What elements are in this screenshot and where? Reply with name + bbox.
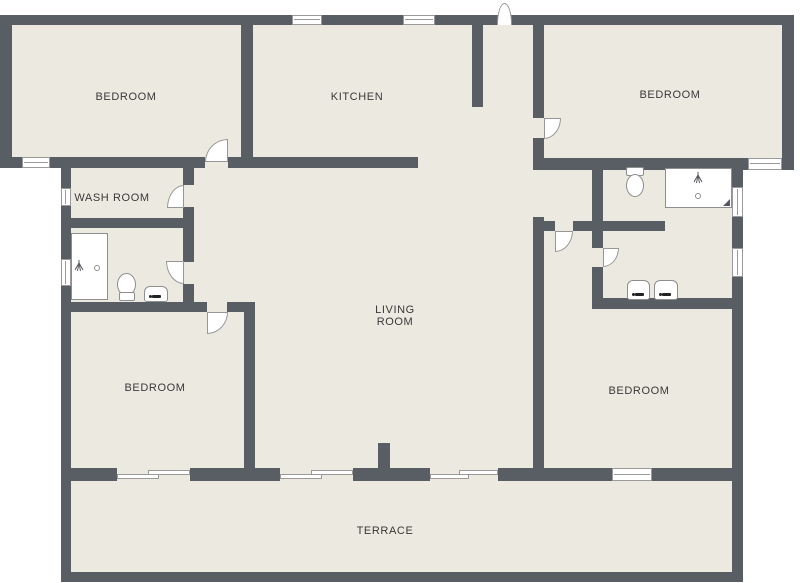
faucet-icon (662, 293, 671, 296)
wall-terrace-bottom (61, 572, 740, 582)
toilet-left-tank (119, 292, 135, 301)
sliding-door-living-1 (280, 468, 353, 481)
sliding-door-living-2 (430, 468, 498, 481)
wall-rightbath-divider-a (592, 158, 603, 248)
drain-icon (94, 265, 100, 271)
room-label-wash-room: WASH ROOM (74, 192, 149, 204)
window-bedroombr-bottom (612, 468, 652, 481)
sliding-pane (148, 470, 190, 475)
wall-kitchen-right (472, 24, 483, 107)
wall-bedroombl-right (244, 302, 255, 481)
room-label-bedroom-bottom-left: BEDROOM (124, 382, 185, 394)
wall-exterior-left-upper (0, 15, 12, 168)
window-kitchen-1 (292, 15, 322, 25)
sliding-pane (459, 470, 498, 475)
window-rightbath (732, 187, 743, 217)
wall-bedroombr-left (533, 217, 544, 481)
sink-right-1 (627, 280, 650, 300)
room-label-bedroom-top-left: BEDROOM (95, 91, 156, 103)
faucet-icon (635, 293, 644, 296)
sink-left (144, 286, 168, 302)
window-bedroomtl-bottom (22, 157, 50, 168)
wall-washroom-right-b (183, 207, 194, 262)
wall-exterior-top (0, 15, 794, 25)
wall-washroom-bottom (61, 218, 194, 228)
sliding-pane (311, 470, 353, 475)
wall-bathroom-bottom-a (61, 302, 207, 312)
room-label-bedroom-top-right: BEDROOM (639, 89, 700, 101)
window-bedroomtr-bottom (748, 158, 782, 170)
shower-corner-mark (723, 199, 730, 206)
drain-icon (695, 193, 701, 199)
faucet-icon (152, 295, 161, 298)
window-rightcorridor (732, 248, 743, 277)
shower-head-icon (692, 171, 704, 184)
wall-washroom-right-a (183, 168, 194, 185)
wall-bedroomtl-kitchen-divider (241, 24, 253, 167)
sink-right-2 (654, 280, 678, 300)
wall-exterior-right-upper (782, 15, 794, 170)
room-label-terrace: TERRACE (357, 525, 414, 537)
wall-house-bottom-seg3 (353, 468, 430, 481)
toilet-right-bowl (626, 174, 644, 197)
wall-kitchen-bottom (228, 157, 418, 168)
wall-house-bottom-seg1 (61, 468, 117, 481)
wall-bedroombr-top-a (533, 221, 555, 231)
wall-bedroomtr-left-a (533, 24, 544, 118)
wall-house-bottom-seg2 (190, 468, 280, 481)
wall-livingroom-stub (378, 443, 390, 473)
floor-plan: BEDROOM KITCHEN BEDROOM WASH ROOM LIVING… (0, 0, 800, 583)
window-washroom-left (61, 188, 71, 206)
room-label-living-room: LIVING ROOM (363, 304, 427, 328)
wall-bedroomtr-left-b (533, 138, 544, 158)
window-bathroom-left (61, 259, 71, 286)
wall-exterior-right-lower (732, 158, 743, 582)
sliding-door-bedroombl (117, 468, 190, 481)
wall-bedroombr-top-b (573, 221, 665, 231)
door-front-entrance (497, 3, 512, 25)
window-kitchen-2 (403, 15, 435, 25)
room-label-kitchen: KITCHEN (331, 91, 383, 103)
shower-right (665, 168, 732, 208)
bathtub-shower (71, 233, 108, 300)
room-label-bedroom-bottom-right: BEDROOM (608, 385, 669, 397)
shower-head-icon (73, 259, 85, 272)
